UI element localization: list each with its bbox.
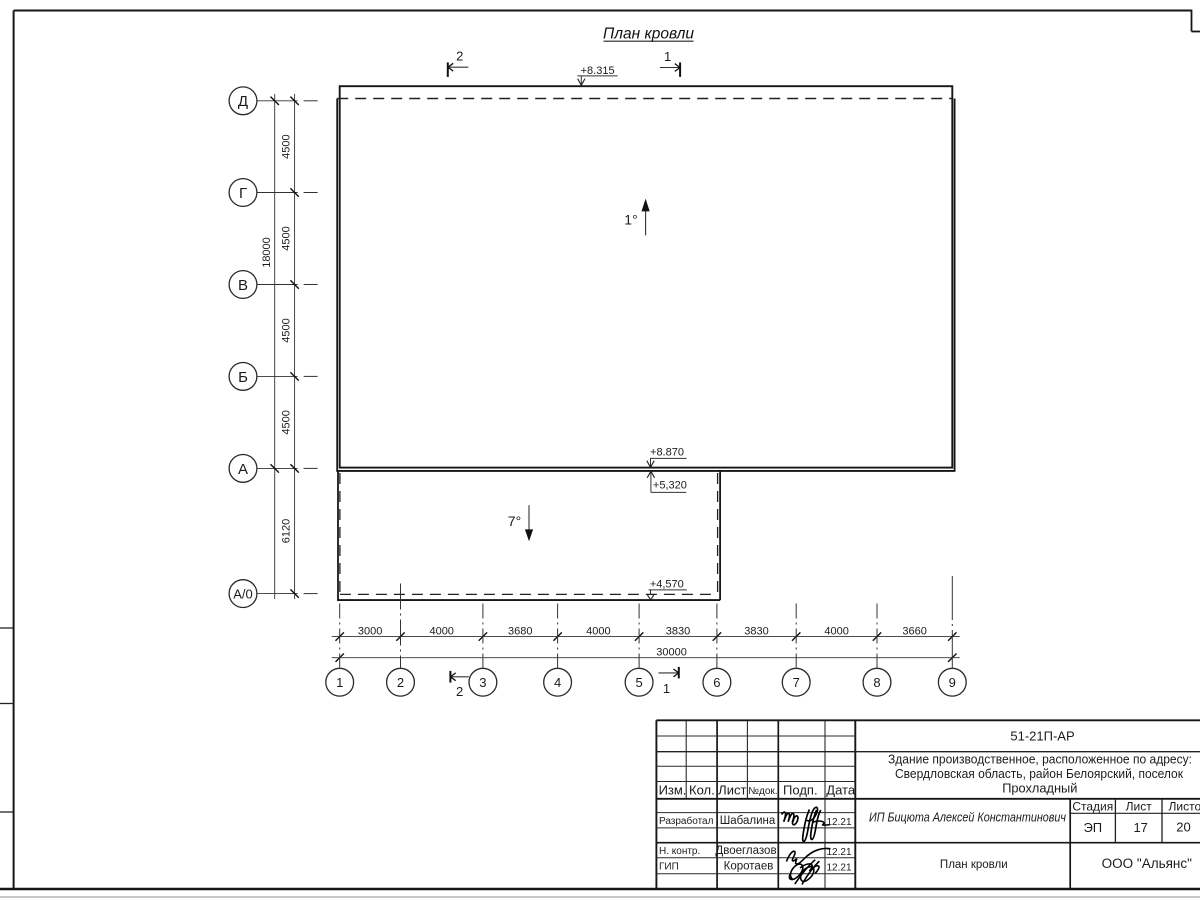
svg-text:3830: 3830: [666, 625, 690, 637]
svg-text:1°: 1°: [624, 211, 637, 227]
svg-text:4000: 4000: [429, 625, 453, 637]
svg-text:4500: 4500: [281, 134, 293, 158]
svg-text:30000: 30000: [656, 646, 687, 658]
svg-text:17: 17: [1133, 820, 1147, 835]
svg-text:ООО "Альянс": ООО "Альянс": [1102, 856, 1192, 871]
svg-text:Дата: Дата: [826, 782, 856, 797]
svg-text:Свердловская область, район Бе: Свердловская область, район Белоярский, …: [895, 766, 1183, 781]
svg-text:3660: 3660: [902, 625, 926, 637]
svg-text:2: 2: [456, 684, 463, 699]
svg-text:ИП Бицюта Алексей Константинов: ИП Бицюта Алексей Константинович: [869, 810, 1066, 824]
svg-text:Прохладный: Прохладный: [1002, 781, 1077, 796]
svg-text:7: 7: [793, 675, 800, 690]
svg-text:План кровли: План кровли: [940, 859, 1008, 871]
svg-text:4500: 4500: [281, 410, 293, 434]
svg-text:Изм.: Изм.: [659, 782, 687, 797]
svg-text:Г: Г: [239, 185, 247, 202]
svg-text:+4,570: +4,570: [650, 579, 684, 591]
svg-text:План кровли: План кровли: [603, 26, 694, 43]
svg-text:А/0: А/0: [233, 586, 253, 601]
svg-text:8: 8: [873, 675, 880, 690]
svg-text:6: 6: [713, 675, 720, 690]
svg-text:9: 9: [949, 675, 956, 690]
svg-text:7°: 7°: [508, 513, 521, 529]
svg-text:18000: 18000: [261, 237, 273, 268]
svg-text:2: 2: [397, 675, 404, 690]
svg-text:В: В: [238, 277, 248, 294]
svg-text:+5,320: +5,320: [653, 480, 687, 492]
svg-text:Стадия: Стадия: [1072, 800, 1113, 814]
svg-text:Здание производственное, распо: Здание производственное, расположенное п…: [888, 752, 1192, 767]
svg-text:+8.870: +8.870: [650, 446, 684, 458]
svg-text:51-21П-АР: 51-21П-АР: [1010, 729, 1074, 744]
svg-text:2: 2: [456, 49, 463, 64]
svg-text:12.21: 12.21: [826, 862, 851, 873]
svg-text:1: 1: [336, 675, 343, 690]
svg-text:Коротаев: Коротаев: [724, 861, 774, 873]
svg-text:Подп.: Подп.: [783, 782, 818, 797]
svg-text:4500: 4500: [281, 226, 293, 250]
svg-text:А: А: [238, 461, 248, 478]
svg-text:3: 3: [479, 675, 486, 690]
svg-text:1: 1: [664, 49, 671, 64]
svg-text:Н. контр.: Н. контр.: [659, 846, 700, 857]
svg-text:ЭП: ЭП: [1083, 820, 1102, 835]
svg-text:4: 4: [554, 675, 561, 690]
svg-text:4000: 4000: [586, 625, 610, 637]
svg-text:Шабалина: Шабалина: [720, 815, 776, 827]
svg-text:1: 1: [663, 681, 670, 696]
svg-text:4000: 4000: [824, 625, 848, 637]
svg-text:5: 5: [635, 675, 642, 690]
svg-text:Двоеглазов: Двоеглазов: [715, 845, 776, 857]
svg-text:3680: 3680: [508, 625, 532, 637]
svg-text:+8.315: +8.315: [581, 65, 615, 77]
svg-text:20: 20: [1176, 819, 1190, 834]
svg-text:ГИП: ГИП: [659, 861, 679, 872]
svg-text:Листов: Листов: [1169, 800, 1200, 814]
svg-text:Б: Б: [238, 369, 248, 386]
svg-text:Лист: Лист: [718, 782, 746, 797]
svg-text:6120: 6120: [281, 519, 293, 543]
svg-text:3830: 3830: [744, 625, 768, 637]
svg-text:12.21: 12.21: [826, 817, 851, 828]
svg-text:№док.: №док.: [748, 786, 777, 797]
svg-text:4500: 4500: [281, 318, 293, 342]
svg-text:Лист: Лист: [1126, 800, 1153, 814]
svg-text:Д: Д: [238, 93, 248, 110]
svg-text:3000: 3000: [358, 625, 382, 637]
svg-text:Разработал: Разработал: [659, 815, 714, 827]
svg-text:Кол.: Кол.: [689, 782, 715, 797]
